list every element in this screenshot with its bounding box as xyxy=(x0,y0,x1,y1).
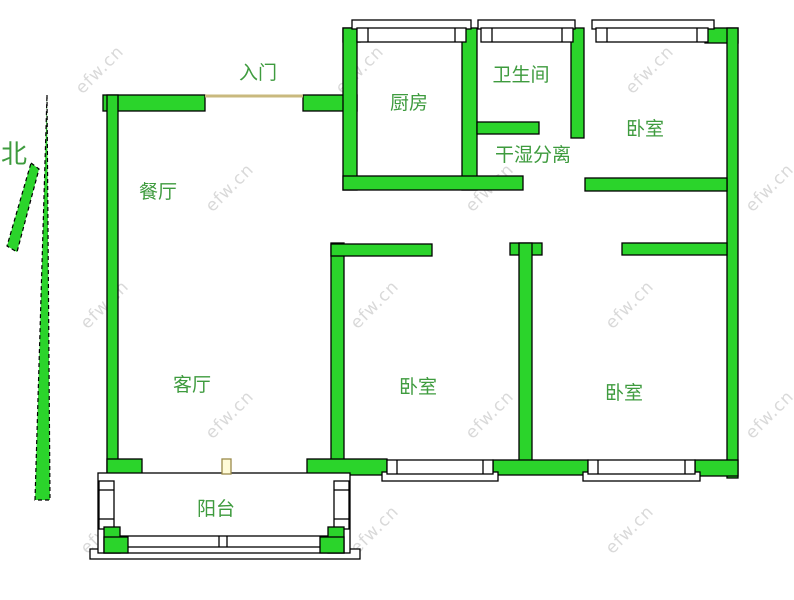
wall-bathroom-bottom xyxy=(477,122,539,134)
north-arrow-fletch xyxy=(7,163,39,252)
kitchen-label: 厨房 xyxy=(390,92,428,114)
wall-hall-top-left xyxy=(343,176,523,190)
windows-top xyxy=(352,20,714,42)
wall-mid-vertical xyxy=(519,243,532,473)
bedroom-topright-window xyxy=(592,20,714,42)
wall-midbed-top xyxy=(331,244,432,256)
wall-kitchen-left xyxy=(343,28,357,190)
north-arrow-shaft xyxy=(35,95,50,500)
wall-midbed-left xyxy=(331,243,344,475)
bathroom-window xyxy=(478,20,575,42)
balcony-bottom-window xyxy=(116,536,334,547)
bedroom-middle-label: 卧室 xyxy=(399,376,437,398)
bathroom-label: 卫生间 xyxy=(492,64,549,86)
wall-bottom-seg-mid xyxy=(493,460,588,475)
living-label: 客厅 xyxy=(173,374,211,396)
floor-plan: efw.cn efw.cn efw.cn efw.cn efw.cn efw.c… xyxy=(0,0,794,600)
balcony-label: 阳台 xyxy=(197,498,235,520)
entrance-label: 入门 xyxy=(239,62,277,84)
dry-wet-label: 干湿分离 xyxy=(495,144,571,166)
bedroom-bottomright-label: 卧室 xyxy=(605,382,643,404)
bedroom-bottomright-window xyxy=(583,460,700,481)
dining-label: 餐厅 xyxy=(139,181,177,203)
bedroom-topright-label: 卧室 xyxy=(626,118,664,140)
wall-brbed-top xyxy=(622,243,727,255)
north-label: 北 xyxy=(1,140,27,170)
wall-bottom-seg-right xyxy=(695,460,738,476)
balcony-side-window-right xyxy=(334,481,349,529)
balcony-side-window-left xyxy=(99,481,114,529)
bedroom-middle-window xyxy=(382,460,498,481)
kitchen-window xyxy=(352,20,471,42)
wall-bath-bedroom-divider xyxy=(571,28,584,138)
wall-left xyxy=(107,95,118,475)
floor-plan-drawing: 北 入门 餐厅 客厅 厨房 卫生间 干湿分离 卧室 卧室 卧室 阳台 xyxy=(0,0,794,600)
wall-right xyxy=(727,28,738,478)
door-symbol xyxy=(222,459,231,474)
wall-kitchen-bath-divider xyxy=(462,28,477,190)
wall-hall-top-right xyxy=(585,178,727,191)
